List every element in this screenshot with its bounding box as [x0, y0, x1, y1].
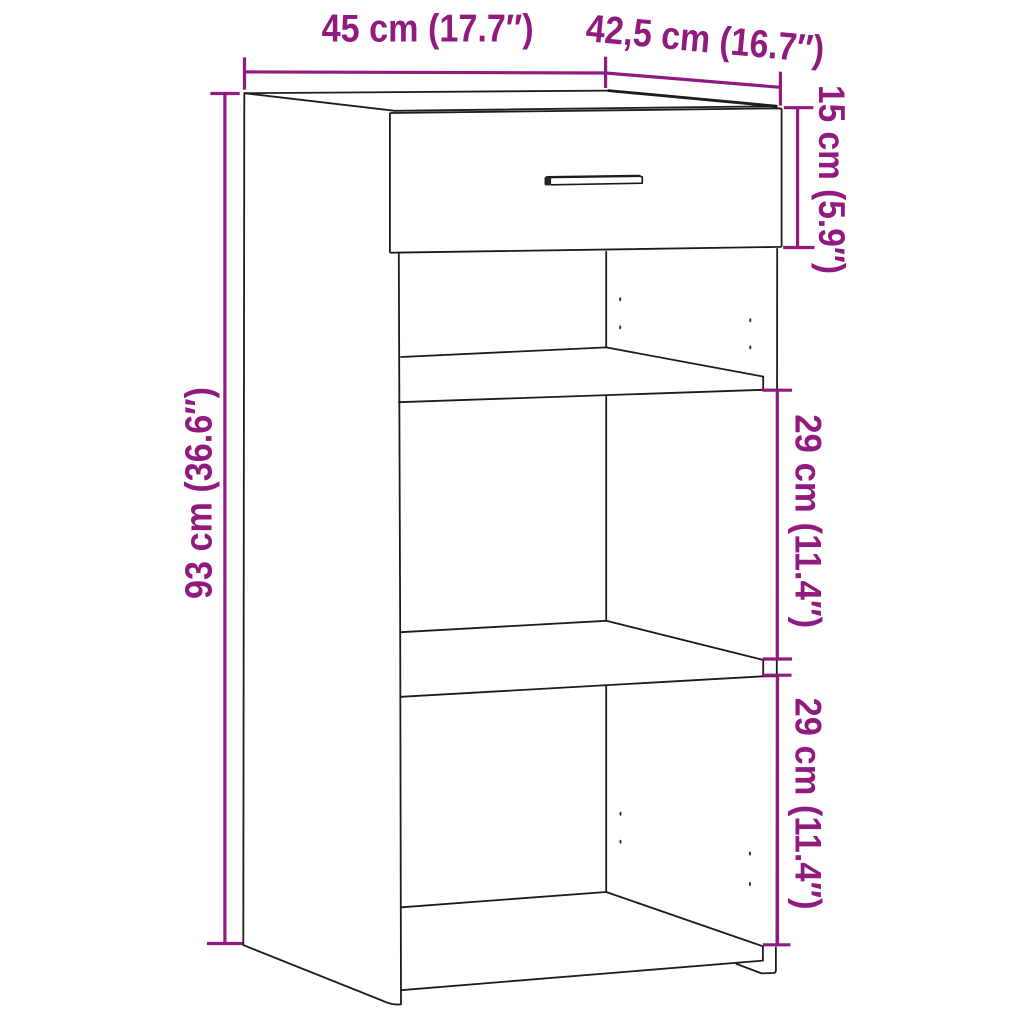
svg-text:15 cm (5.9″): 15 cm (5.9″) [811, 85, 852, 274]
svg-text:29 cm (11.4″): 29 cm (11.4″) [788, 698, 829, 910]
svg-text:45 cm (17.7″): 45 cm (17.7″) [322, 8, 534, 51]
svg-text:93 cm (36.6″): 93 cm (36.6″) [179, 387, 221, 599]
svg-text:29 cm (11.4″): 29 cm (11.4″) [788, 414, 829, 628]
